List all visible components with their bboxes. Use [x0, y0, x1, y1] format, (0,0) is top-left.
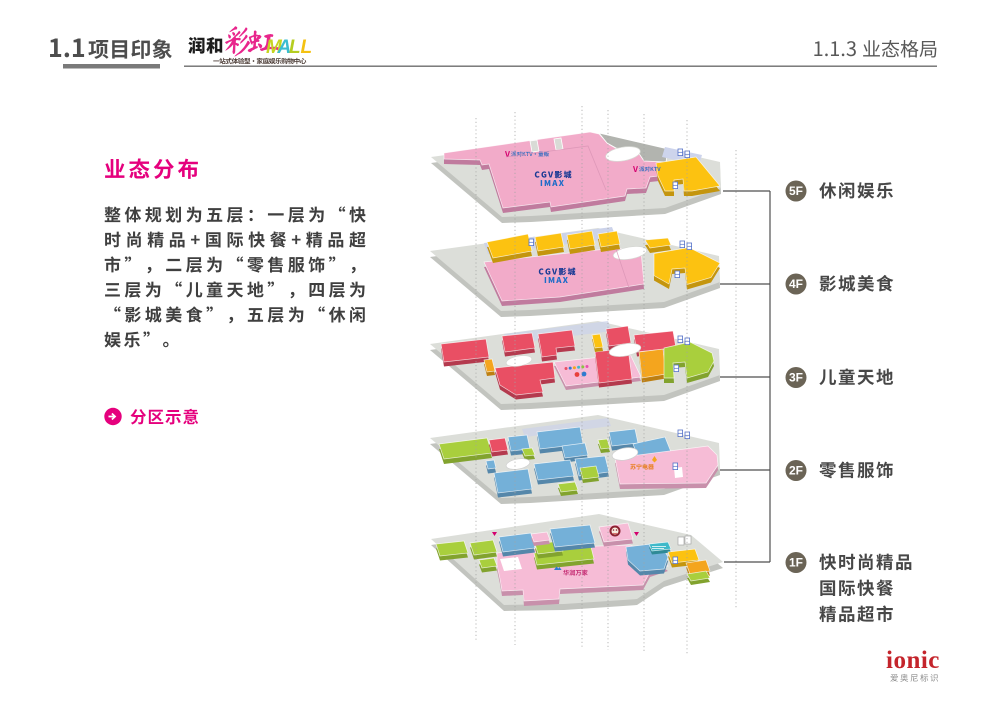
svg-text:4F: 4F [789, 277, 803, 291]
svg-text:3F: 3F [789, 371, 803, 385]
svg-text:ionic: ionic [886, 647, 940, 674]
svg-text:5F: 5F [789, 184, 803, 198]
svg-text:L: L [289, 37, 301, 58]
svg-text:2F: 2F [789, 464, 803, 478]
svg-text:L: L [301, 37, 313, 58]
svg-text:1F: 1F [789, 556, 803, 570]
